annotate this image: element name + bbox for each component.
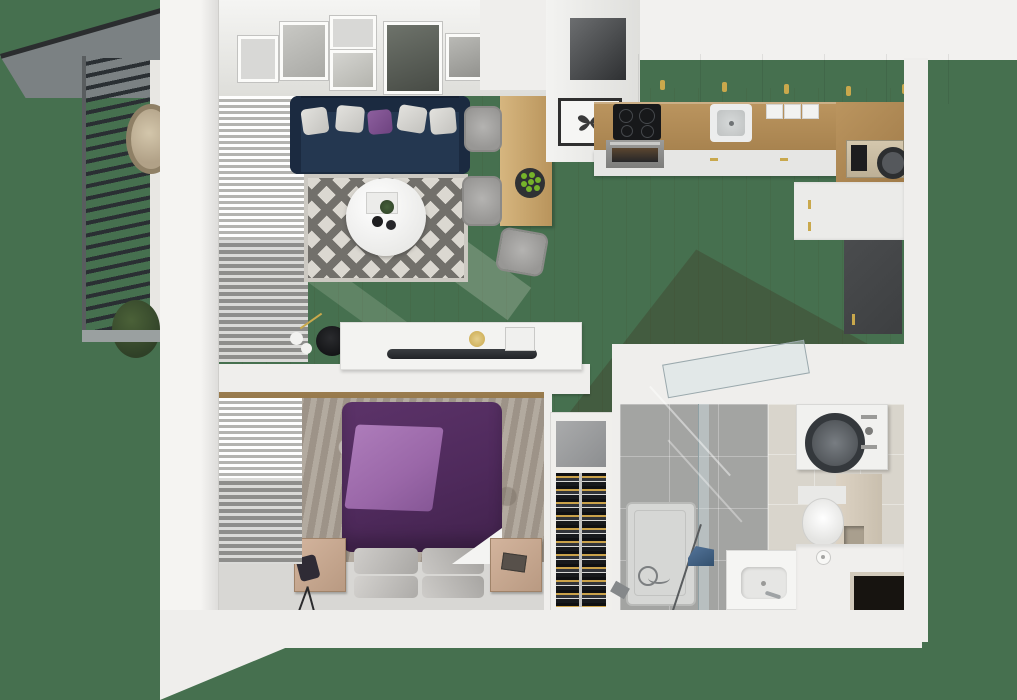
washer-door <box>805 413 865 473</box>
oven <box>606 140 664 168</box>
green-apple <box>528 179 534 185</box>
tv-sideboard <box>340 322 582 370</box>
wall-art-frame <box>238 36 278 82</box>
sink-drain <box>729 121 734 126</box>
balcony-slatted-screen <box>84 58 152 334</box>
dining-chair <box>495 226 550 278</box>
canister <box>766 104 783 119</box>
bathroom-left-wall <box>612 344 620 612</box>
bedroom-window-blinds <box>218 398 302 478</box>
green-apple <box>534 185 540 191</box>
hob-burner <box>641 125 654 138</box>
toilet-bowl <box>802 498 844 546</box>
window-recess <box>850 572 910 614</box>
cabinet-handle <box>846 86 851 96</box>
right-base-units <box>794 182 906 240</box>
remote-tray <box>505 327 535 351</box>
book <box>501 552 527 572</box>
bottom-outer-wall <box>160 610 922 648</box>
bench-counter <box>796 544 905 612</box>
left-outer-wall <box>160 0 219 652</box>
balcony <box>0 0 160 360</box>
bed-pillow <box>354 548 418 574</box>
sofa <box>290 96 470 174</box>
wall-art-frame <box>280 22 328 80</box>
wall-hung-toilet <box>798 486 846 546</box>
cabinet-handle <box>660 80 665 90</box>
balcony-floor-strip <box>150 60 160 332</box>
cabinet-handle <box>784 84 789 94</box>
bed-pillow <box>422 576 484 598</box>
green-apple <box>526 186 532 192</box>
shower-tray <box>626 502 696 606</box>
wall-art-frame <box>384 22 442 94</box>
wall-art-frame <box>330 16 376 50</box>
vanity-unit <box>726 550 804 610</box>
coffee-table <box>346 178 426 256</box>
sofa-pillow <box>300 106 329 135</box>
dining-chair <box>464 106 502 152</box>
balcony-rail <box>82 330 160 342</box>
washer-controls <box>861 415 877 419</box>
dining-chair <box>462 176 502 226</box>
bed-throw-blanket <box>344 424 443 511</box>
canister <box>784 104 801 119</box>
sofa-pillow <box>396 104 428 134</box>
cabinet-handle <box>808 222 811 231</box>
wine-rack-pole <box>579 473 582 607</box>
coffee-machine-hopper <box>851 145 867 171</box>
washer-controls <box>861 445 877 449</box>
right-outer-wall <box>904 58 928 642</box>
top-wall-wedge <box>480 0 548 90</box>
sofa-pillow <box>335 105 365 133</box>
sofa-purple-pillow <box>367 109 393 135</box>
canister <box>802 104 819 119</box>
sofa-armrest-left <box>290 96 301 174</box>
cabinet-handle <box>722 82 727 92</box>
hob-burner <box>621 125 633 137</box>
wine-rack-column <box>550 412 614 614</box>
wine-column-bottles <box>556 473 606 607</box>
black-cup <box>386 220 396 230</box>
vase <box>301 343 312 354</box>
shower-hose <box>648 572 670 584</box>
coffee-machine <box>846 140 904 178</box>
balcony-plant <box>112 300 160 358</box>
cabinet-handle <box>780 158 788 161</box>
floor-plan-render <box>0 0 1017 700</box>
wine-column-cabinet <box>556 421 606 467</box>
wall-art-frame <box>330 50 376 90</box>
balcony-post <box>82 56 86 342</box>
bottom-left-wall-wedge <box>160 646 290 700</box>
hob-burner <box>619 109 633 123</box>
hob-burner <box>639 108 655 124</box>
bed-pillow <box>354 576 418 598</box>
cabinet-handle <box>710 158 718 161</box>
table-plant <box>380 200 394 214</box>
green-apple <box>529 172 535 178</box>
green-apple <box>535 177 541 183</box>
dining-table <box>500 90 552 226</box>
green-apple <box>521 173 527 179</box>
basin-drain <box>761 581 766 586</box>
black-cup <box>372 216 383 227</box>
toilet-paper-core <box>821 555 825 559</box>
oven-window <box>612 148 658 162</box>
bedroom-window-blinds-lower <box>218 478 302 564</box>
ventilation-recess <box>570 18 626 80</box>
fruit-plate <box>515 168 545 198</box>
oven-handle <box>610 142 660 145</box>
gold-dish <box>469 331 485 347</box>
bed <box>342 402 502 552</box>
tall-dark-cabinet <box>844 240 902 334</box>
induction-hob <box>613 104 661 140</box>
sofa-pillow <box>429 107 457 135</box>
vase <box>290 332 303 345</box>
washer-dial <box>865 427 873 435</box>
cabinet-handle <box>808 200 811 209</box>
shower-glass-screen <box>698 404 709 612</box>
cabinet-handle <box>852 314 855 325</box>
kitchen-sink <box>710 104 752 142</box>
washing-machine <box>796 404 888 470</box>
